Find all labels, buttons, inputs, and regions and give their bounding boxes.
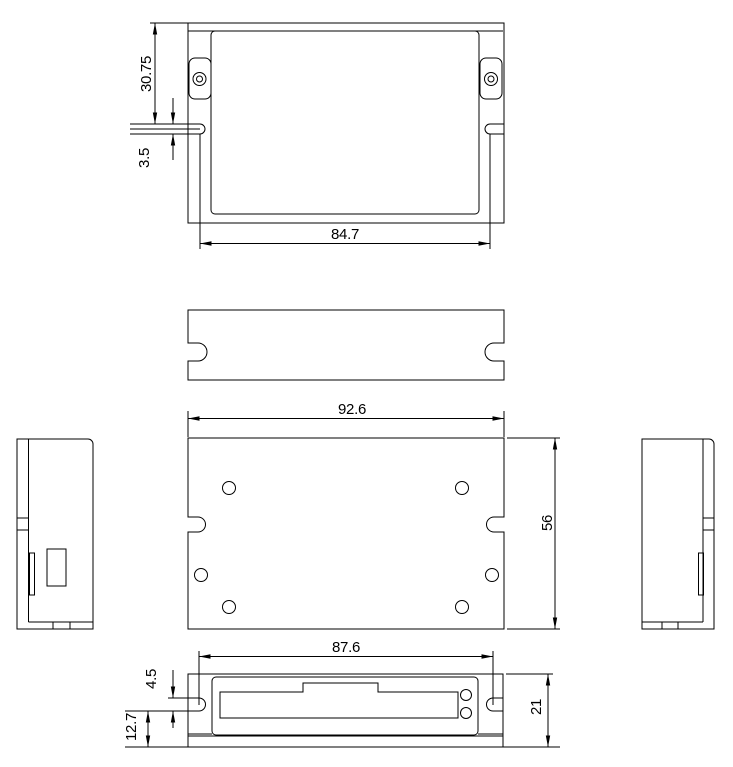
- mounting-hole: [223, 482, 236, 495]
- front-body: [212, 677, 478, 735]
- dim-label: 56: [539, 515, 556, 531]
- dip-switch-cutout: [47, 549, 66, 586]
- right-side-view: [642, 439, 714, 629]
- screw-hole-right: [488, 76, 494, 82]
- screw-boss-left: [193, 73, 206, 86]
- cover-outline: [211, 31, 479, 214]
- dim-label: 87.6: [332, 639, 360, 656]
- mounting-hole: [195, 569, 208, 582]
- front-view: [168, 674, 503, 747]
- led-indicator-top: [461, 690, 472, 701]
- profile-view: [188, 310, 504, 380]
- connector-cutout: [220, 683, 458, 718]
- mounting-hole: [486, 569, 499, 582]
- mounting-slot-left: [168, 698, 206, 711]
- dim-overall-width: 92.6: [188, 401, 504, 437]
- dim-label: 84.7: [331, 226, 359, 243]
- dim-slot-spacing-top: 84.7: [200, 134, 490, 249]
- base-plate: [188, 736, 503, 747]
- dim-label: 30.75: [138, 56, 155, 92]
- screw-hole-left: [197, 76, 203, 82]
- plan-outline: [188, 438, 504, 629]
- mounting-slot-right: [485, 124, 504, 134]
- dim-slot-to-base: 12.7: [123, 711, 188, 747]
- dim-label: 12.7: [123, 713, 140, 741]
- top-view: [130, 23, 504, 223]
- mounting-slot-right: [487, 698, 504, 711]
- profile-outline: [188, 310, 504, 380]
- dim-label: 3.5: [136, 148, 153, 168]
- screw-tab-right: [480, 58, 502, 99]
- plan-view: [188, 438, 504, 629]
- drawing-sheet: 30.75 3.5 84.7 92.6 56: [0, 0, 733, 767]
- dim-edge-to-slot: 30.75: [138, 23, 188, 124]
- led-indicator-bottom: [461, 708, 472, 719]
- screw-boss-right: [485, 73, 498, 86]
- top-view-outline: [188, 23, 504, 223]
- dim-overall-height: 21: [503, 674, 560, 747]
- mounting-hole: [456, 601, 469, 614]
- dim-label: 92.6: [338, 401, 366, 418]
- dim-label: 4.5: [143, 669, 160, 689]
- dim-overall-depth: 56: [507, 438, 560, 629]
- dim-slot-spacing-front: 87.6: [199, 639, 493, 705]
- mounting-hole: [456, 482, 469, 495]
- technical-drawing: 30.75 3.5 84.7 92.6 56: [0, 0, 733, 767]
- screw-tab-left: [189, 58, 211, 99]
- dim-label: 21: [528, 699, 545, 715]
- mounting-hole: [223, 601, 236, 614]
- card-edge-tab: [30, 553, 35, 595]
- left-side-view: [17, 439, 93, 629]
